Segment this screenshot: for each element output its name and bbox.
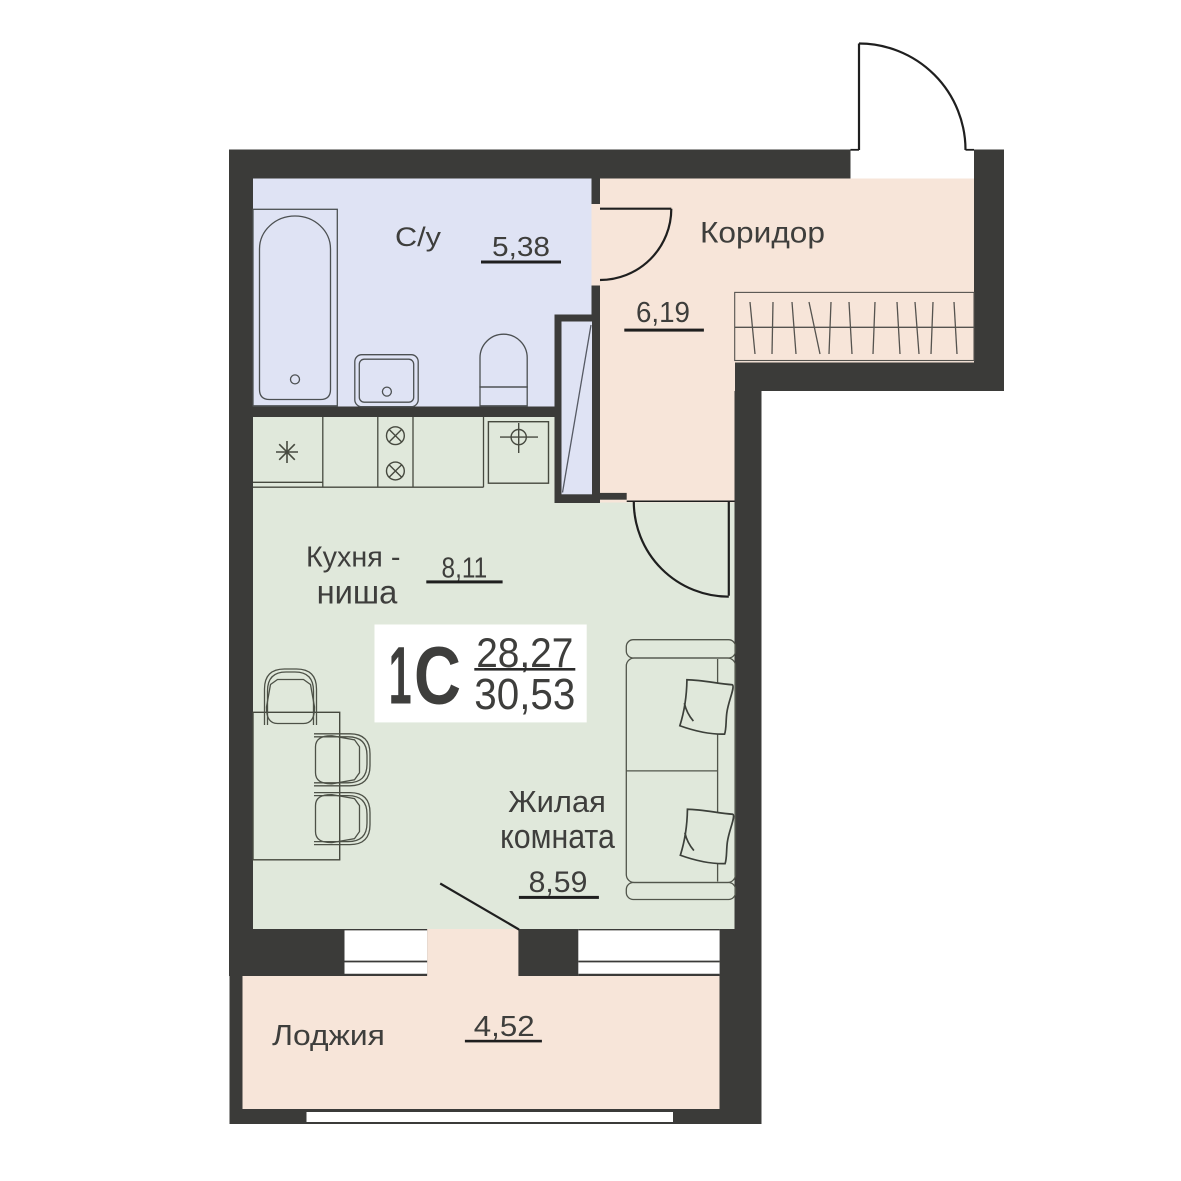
svg-text:комната: комната [500, 818, 615, 856]
svg-text:6,19: 6,19 [636, 297, 690, 329]
svg-text:4,52: 4,52 [474, 1011, 535, 1043]
svg-text:С/у: С/у [395, 222, 442, 252]
svg-text:С: С [414, 630, 461, 721]
svg-text:5,38: 5,38 [492, 231, 550, 262]
svg-text:Кухня -: Кухня - [306, 541, 401, 573]
svg-text:Коридор: Коридор [700, 217, 825, 250]
svg-text:8,59: 8,59 [529, 866, 588, 899]
svg-text:ниша: ниша [317, 573, 398, 610]
svg-text:Лоджия: Лоджия [272, 1020, 385, 1052]
svg-text:Жилая: Жилая [508, 784, 606, 819]
svg-text:30,53: 30,53 [474, 670, 575, 719]
svg-text:1: 1 [389, 630, 412, 721]
svg-text:8,11: 8,11 [442, 552, 488, 584]
